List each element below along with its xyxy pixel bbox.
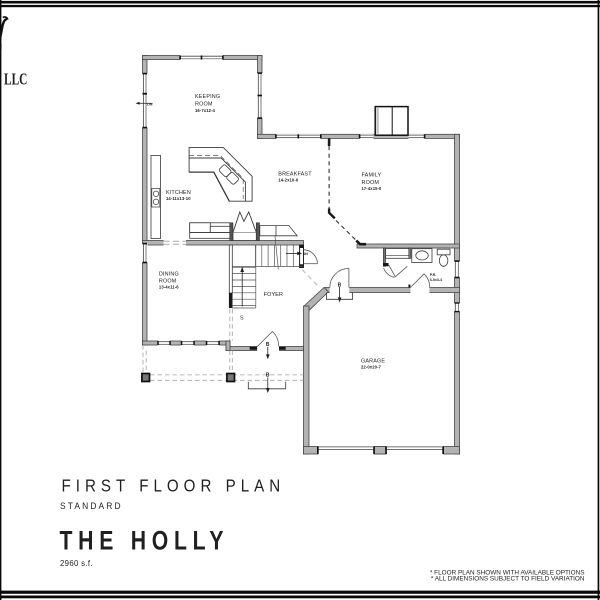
svg-text:DN: DN (303, 252, 309, 256)
svg-text:17-4x15-0: 17-4x15-0 (362, 186, 383, 191)
svg-text:* ALL DIMENSIONS SUBJECT TO FI: * ALL DIMENSIONS SUBJECT TO FIELD VARIAT… (431, 576, 585, 583)
svg-text:LLC: LLC (4, 70, 27, 89)
svg-text:P.R.: P.R. (430, 273, 437, 277)
svg-text:6-0x3-4: 6-0x3-4 (430, 278, 442, 282)
svg-text:DN: DN (147, 102, 153, 106)
svg-text:2960 s.f.: 2960 s.f. (60, 559, 93, 568)
svg-text:22-0x20-7: 22-0x20-7 (361, 364, 382, 369)
svg-text:14-11x13-10: 14-11x13-10 (166, 196, 191, 201)
svg-text:16-7x12-4: 16-7x12-4 (195, 108, 216, 113)
svg-text:B: B (266, 342, 270, 348)
svg-text:FIRST FLOOR PLAN: FIRST FLOOR PLAN (62, 476, 281, 495)
svg-text:THE HOLLY: THE HOLLY (60, 526, 224, 556)
svg-text:FAMILY: FAMILY (362, 173, 382, 179)
svg-text:STANDARD: STANDARD (60, 501, 121, 512)
svg-text:S: S (240, 316, 244, 322)
svg-text:14-2x10-6: 14-2x10-6 (278, 177, 299, 182)
svg-text:13-4x11-6: 13-4x11-6 (159, 285, 179, 290)
svg-text:KEEPING: KEEPING (195, 94, 220, 100)
svg-text:FOYER: FOYER (264, 292, 283, 298)
svg-text:ROOM: ROOM (195, 101, 213, 107)
svg-text:DINING: DINING (159, 272, 179, 278)
